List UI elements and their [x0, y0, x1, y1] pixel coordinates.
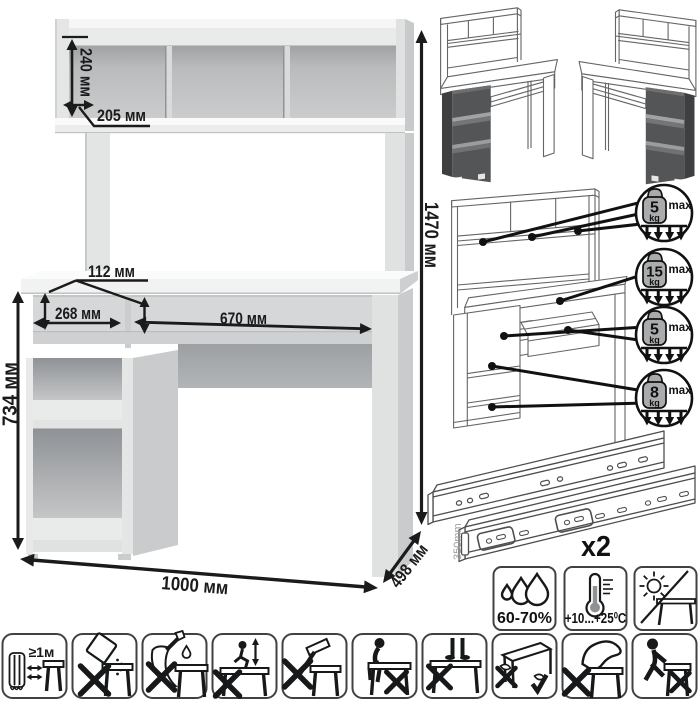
svg-text:1470 мм: 1470 мм: [420, 202, 441, 268]
svg-text:kg: kg: [649, 335, 660, 345]
svg-text:350mm: 350mm: [452, 523, 464, 560]
svg-text:kg: kg: [649, 213, 660, 223]
svg-text:kg: kg: [649, 398, 660, 408]
svg-text:+10...+250C: +10...+250C: [565, 610, 627, 627]
svg-text:max: max: [668, 322, 692, 334]
svg-text:205 мм: 205 мм: [97, 106, 146, 125]
svg-text:max: max: [668, 200, 692, 212]
svg-text:240 мм: 240 мм: [77, 48, 96, 97]
svg-text:268 мм: 268 мм: [55, 304, 101, 323]
svg-text:kg: kg: [649, 277, 660, 287]
svg-text:max: max: [668, 385, 692, 397]
svg-text:112 мм: 112 мм: [88, 262, 135, 281]
svg-text:x2: x2: [581, 531, 611, 563]
svg-text:734 мм: 734 мм: [0, 362, 22, 426]
svg-text:60-70%: 60-70%: [497, 610, 552, 627]
svg-text:≥1м: ≥1м: [29, 644, 55, 660]
svg-text:max: max: [668, 264, 692, 276]
